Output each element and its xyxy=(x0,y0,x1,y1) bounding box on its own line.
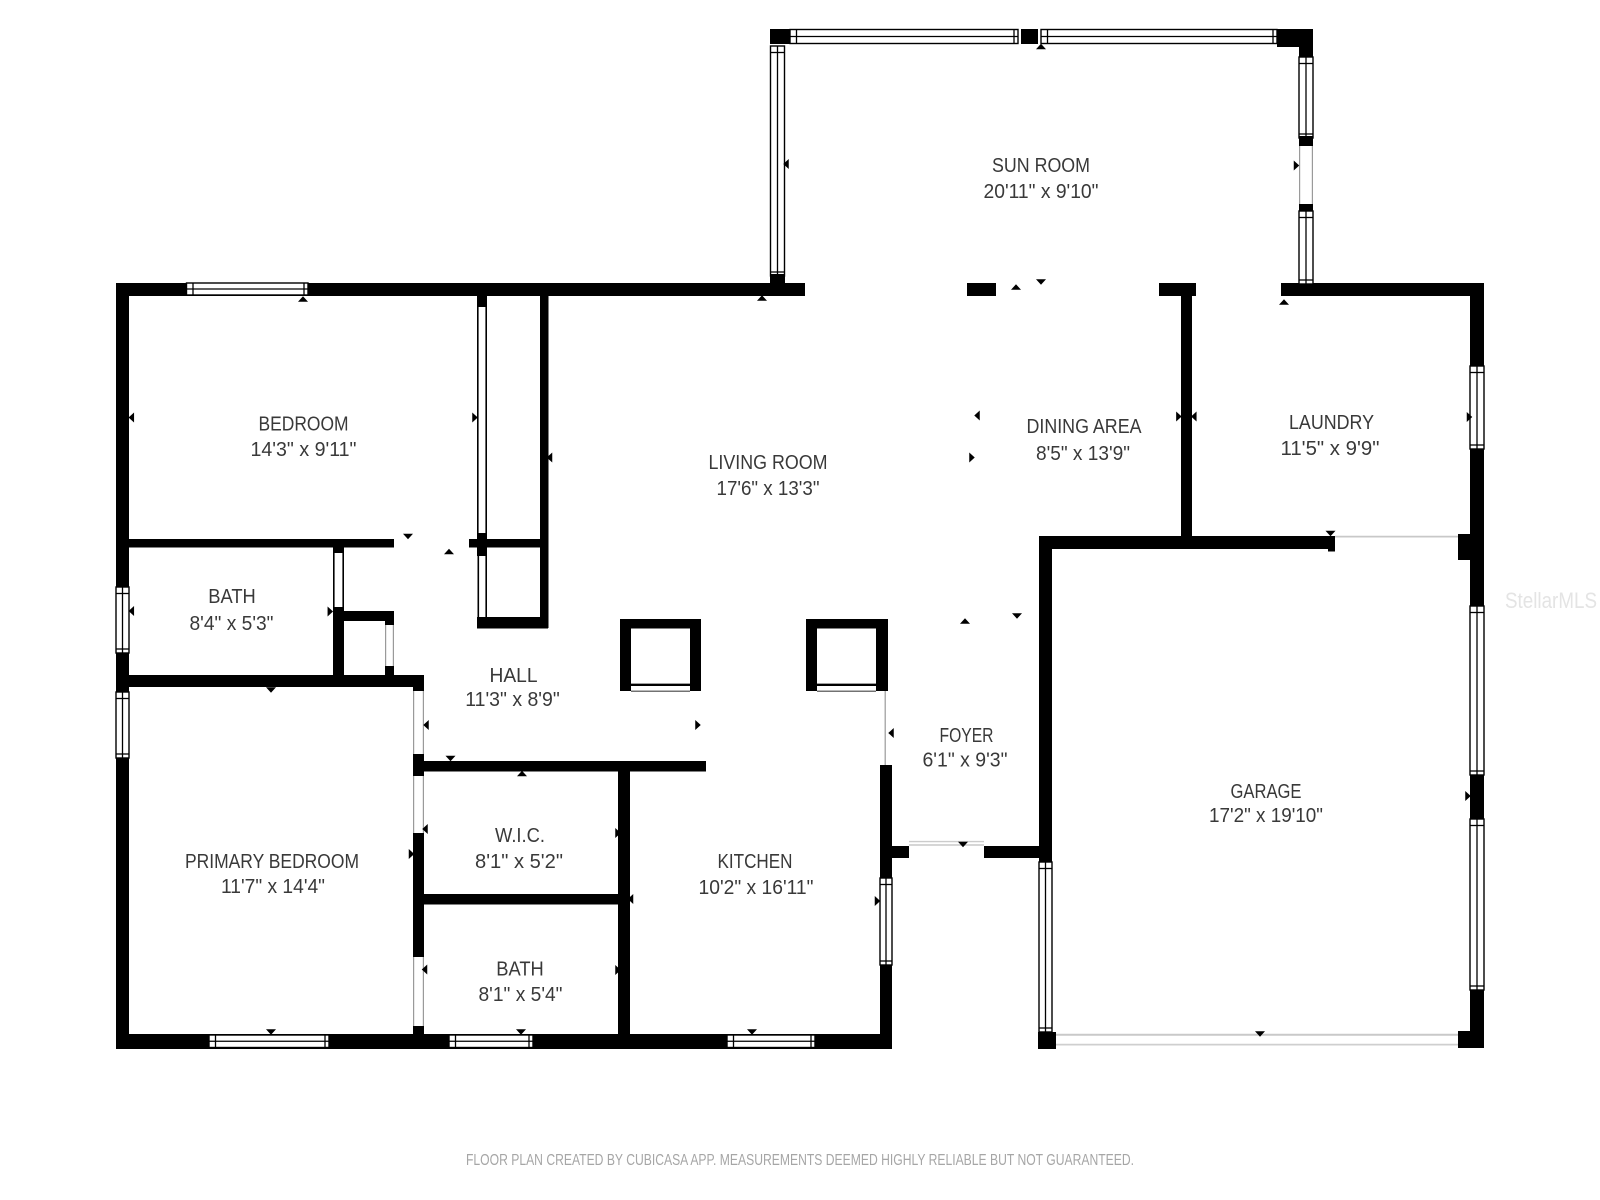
svg-text:GARAGE: GARAGE xyxy=(1231,781,1302,803)
svg-text:DINING AREA: DINING AREA xyxy=(1027,416,1143,438)
svg-text:W.I.C.: W.I.C. xyxy=(495,825,545,847)
svg-text:6'1" x 9'3": 6'1" x 9'3" xyxy=(923,750,1008,772)
svg-text:11'3" x 8'9": 11'3" x 8'9" xyxy=(465,689,560,711)
svg-text:20'11" x 9'10": 20'11" x 9'10" xyxy=(984,181,1099,203)
svg-text:FOYER: FOYER xyxy=(940,725,994,747)
svg-text:8'1" x 5'4": 8'1" x 5'4" xyxy=(479,984,563,1006)
svg-text:HALL: HALL xyxy=(490,665,538,687)
svg-text:LIVING ROOM: LIVING ROOM xyxy=(709,452,828,474)
svg-text:SUN ROOM: SUN ROOM xyxy=(992,155,1090,177)
svg-text:KITCHEN: KITCHEN xyxy=(718,851,793,873)
svg-text:PRIMARY BEDROOM: PRIMARY BEDROOM xyxy=(185,851,359,873)
svg-text:BATH: BATH xyxy=(208,586,256,608)
svg-text:LAUNDRY: LAUNDRY xyxy=(1289,412,1374,434)
svg-text:10'2" x 16'11": 10'2" x 16'11" xyxy=(699,877,814,899)
svg-text:8'4" x 5'3": 8'4" x 5'3" xyxy=(190,613,274,635)
svg-text:StellarMLS: StellarMLS xyxy=(1505,588,1597,613)
svg-text:17'2" x 19'10": 17'2" x 19'10" xyxy=(1209,805,1323,827)
svg-text:11'7" x 14'4": 11'7" x 14'4" xyxy=(221,876,325,898)
svg-text:14'3" x 9'11": 14'3" x 9'11" xyxy=(251,439,357,461)
svg-text:11'5" x 9'9": 11'5" x 9'9" xyxy=(1281,438,1380,460)
svg-text:FLOOR PLAN CREATED BY CUBICASA: FLOOR PLAN CREATED BY CUBICASA APP. MEAS… xyxy=(466,1152,1134,1169)
svg-text:BEDROOM: BEDROOM xyxy=(259,414,349,436)
svg-text:BATH: BATH xyxy=(496,959,544,981)
svg-text:8'1" x 5'2": 8'1" x 5'2" xyxy=(475,851,563,873)
svg-text:17'6" x 13'3": 17'6" x 13'3" xyxy=(717,478,820,500)
svg-text:8'5" x 13'9": 8'5" x 13'9" xyxy=(1036,443,1130,465)
